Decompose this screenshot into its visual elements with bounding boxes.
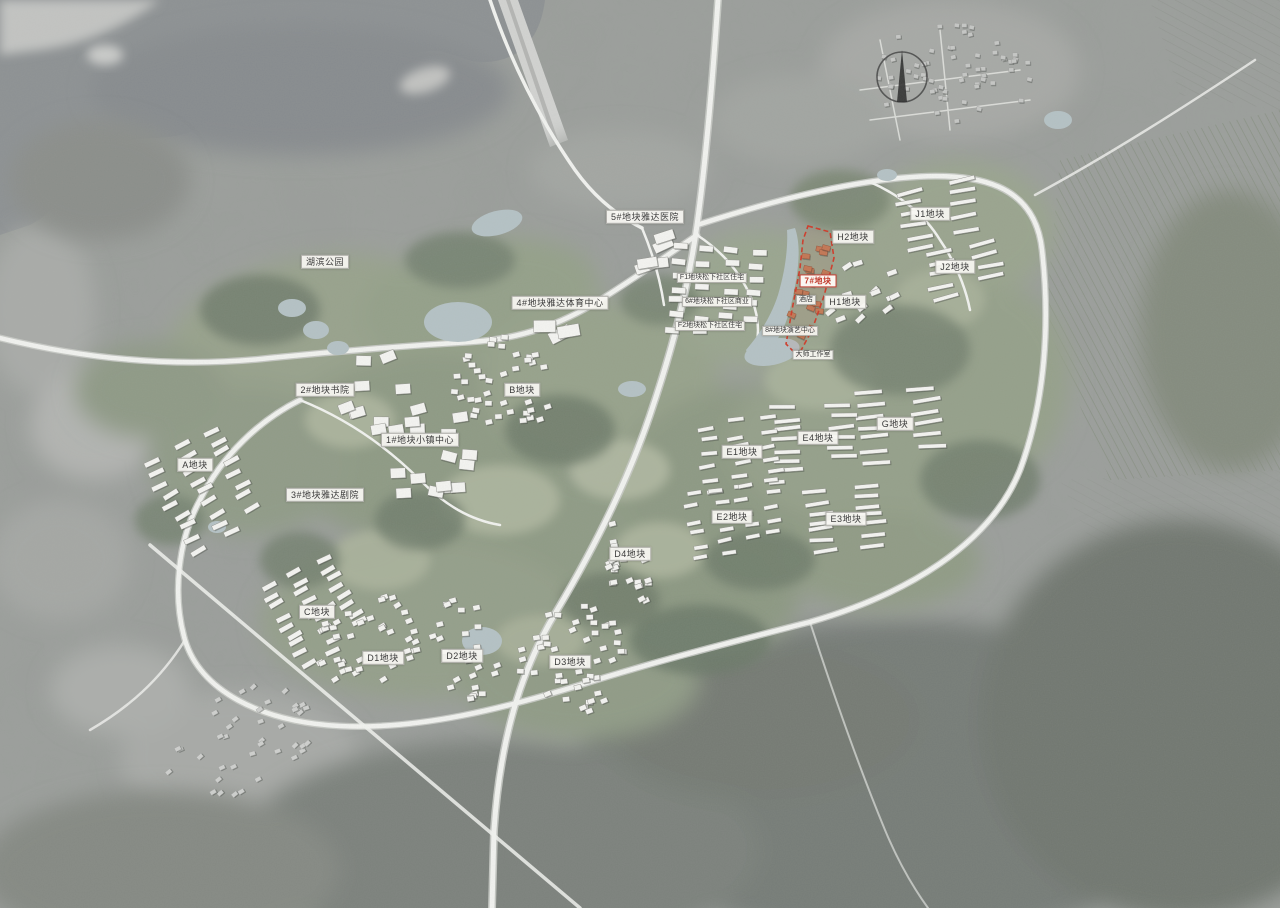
grain-texture <box>0 0 1280 908</box>
master-plan-aerial-map: 湖滨公园5#地块雅达医院4#地块雅达体育中心2#地块书院B地块1#地块小镇中心A… <box>0 0 1280 908</box>
aerial-basemap <box>0 0 1280 908</box>
